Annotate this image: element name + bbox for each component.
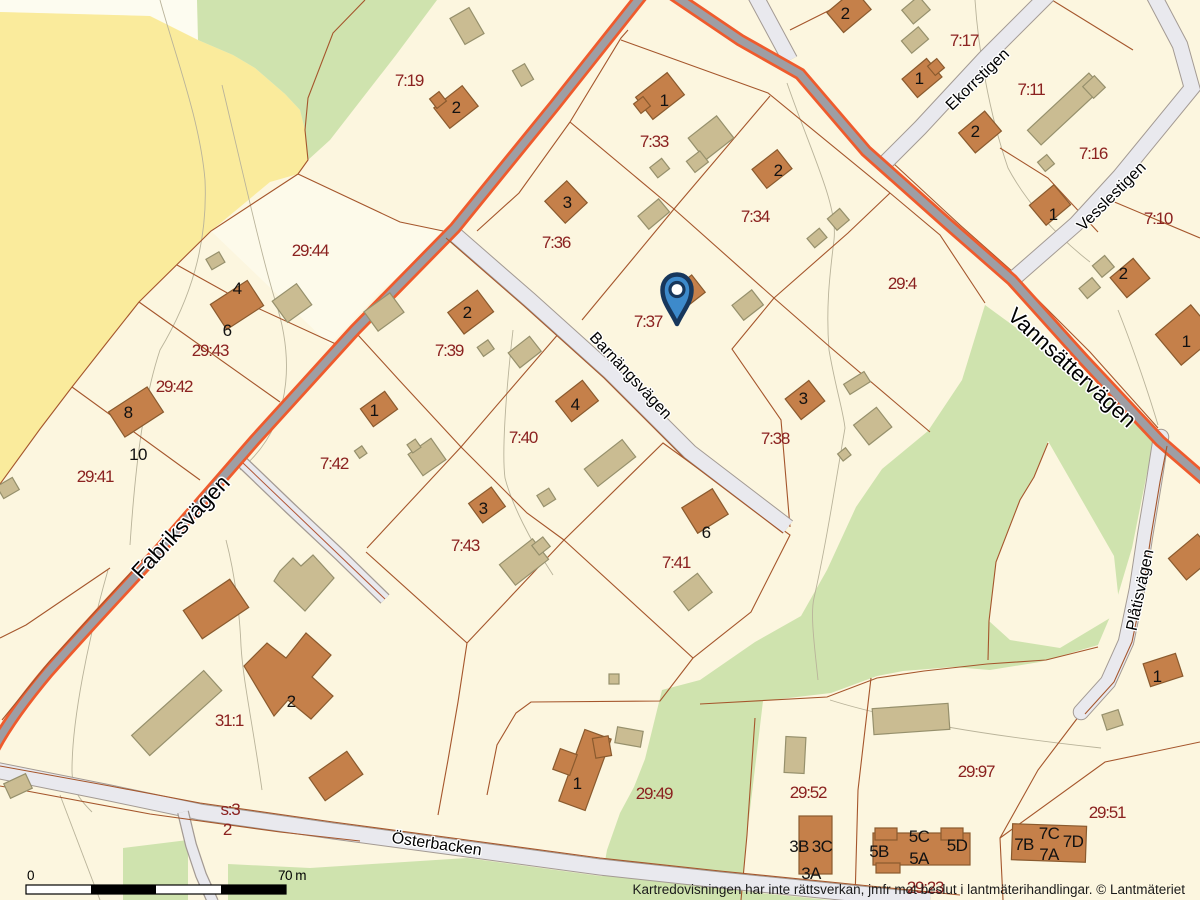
svg-text:Kartredovisningen har inte rät: Kartredovisningen har inte rättsverkan, … bbox=[633, 882, 1186, 897]
svg-text:7:17: 7:17 bbox=[950, 31, 979, 50]
svg-text:1: 1 bbox=[915, 69, 924, 88]
svg-text:29:4: 29:4 bbox=[888, 274, 917, 293]
svg-text:7:11: 7:11 bbox=[1017, 80, 1045, 99]
svg-text:7:38: 7:38 bbox=[761, 429, 790, 448]
svg-text:5C: 5C bbox=[909, 827, 930, 846]
svg-text:2: 2 bbox=[1119, 264, 1128, 283]
svg-text:4: 4 bbox=[233, 279, 242, 298]
svg-text:7:39: 7:39 bbox=[435, 341, 464, 360]
svg-text:1: 1 bbox=[573, 774, 582, 793]
svg-text:6: 6 bbox=[702, 523, 711, 542]
svg-text:7D: 7D bbox=[1063, 832, 1084, 851]
svg-text:1: 1 bbox=[1153, 667, 1162, 686]
svg-text:7:36: 7:36 bbox=[542, 233, 571, 252]
svg-text:2: 2 bbox=[971, 122, 980, 141]
svg-text:7:42: 7:42 bbox=[320, 454, 349, 473]
svg-text:6: 6 bbox=[223, 321, 232, 340]
svg-text:31:1: 31:1 bbox=[215, 711, 244, 730]
svg-text:7A: 7A bbox=[1039, 845, 1060, 864]
svg-text:3: 3 bbox=[479, 499, 488, 518]
svg-text:10: 10 bbox=[129, 445, 147, 464]
svg-text:3: 3 bbox=[799, 389, 808, 408]
svg-text:s:3: s:3 bbox=[220, 800, 240, 819]
svg-text:1: 1 bbox=[1049, 205, 1058, 224]
svg-text:2: 2 bbox=[841, 4, 850, 23]
svg-text:7:19: 7:19 bbox=[395, 71, 424, 90]
svg-text:7:10: 7:10 bbox=[1144, 209, 1173, 228]
svg-text:1: 1 bbox=[660, 91, 669, 110]
svg-text:7:16: 7:16 bbox=[1079, 144, 1108, 163]
svg-text:1: 1 bbox=[1182, 332, 1191, 351]
svg-text:29:49: 29:49 bbox=[636, 784, 673, 803]
svg-text:5D: 5D bbox=[947, 836, 968, 855]
svg-text:29:42: 29:42 bbox=[156, 377, 193, 396]
svg-text:2: 2 bbox=[287, 692, 296, 711]
svg-text:7:33: 7:33 bbox=[640, 132, 669, 151]
svg-text:3B: 3B bbox=[789, 837, 809, 856]
svg-text:2: 2 bbox=[774, 161, 783, 180]
svg-text:3: 3 bbox=[563, 193, 572, 212]
svg-text:29:52: 29:52 bbox=[790, 783, 827, 802]
svg-text:29:51: 29:51 bbox=[1089, 803, 1126, 822]
svg-text:2: 2 bbox=[463, 303, 472, 322]
svg-text:2: 2 bbox=[452, 98, 461, 117]
svg-text:5A: 5A bbox=[909, 849, 930, 868]
svg-text:7:34: 7:34 bbox=[741, 207, 770, 226]
svg-text:29:44: 29:44 bbox=[292, 241, 329, 260]
svg-text:7C: 7C bbox=[1039, 824, 1060, 843]
svg-text:7B: 7B bbox=[1014, 835, 1034, 854]
svg-text:2: 2 bbox=[223, 820, 232, 839]
svg-text:7:37: 7:37 bbox=[634, 312, 663, 331]
svg-text:8: 8 bbox=[124, 403, 133, 422]
svg-text:29:97: 29:97 bbox=[958, 762, 995, 781]
svg-text:5B: 5B bbox=[869, 842, 889, 861]
svg-text:29:43: 29:43 bbox=[192, 341, 229, 360]
svg-text:4: 4 bbox=[571, 395, 580, 414]
svg-text:0: 0 bbox=[27, 868, 35, 883]
svg-text:7:40: 7:40 bbox=[509, 428, 538, 447]
svg-text:29:41: 29:41 bbox=[77, 467, 114, 486]
svg-text:70 m: 70 m bbox=[278, 868, 306, 883]
svg-text:7:43: 7:43 bbox=[451, 536, 480, 555]
svg-text:3C: 3C bbox=[812, 837, 833, 856]
svg-text:7:41: 7:41 bbox=[662, 553, 691, 572]
svg-text:1: 1 bbox=[370, 401, 379, 420]
svg-text:3A: 3A bbox=[801, 864, 822, 883]
